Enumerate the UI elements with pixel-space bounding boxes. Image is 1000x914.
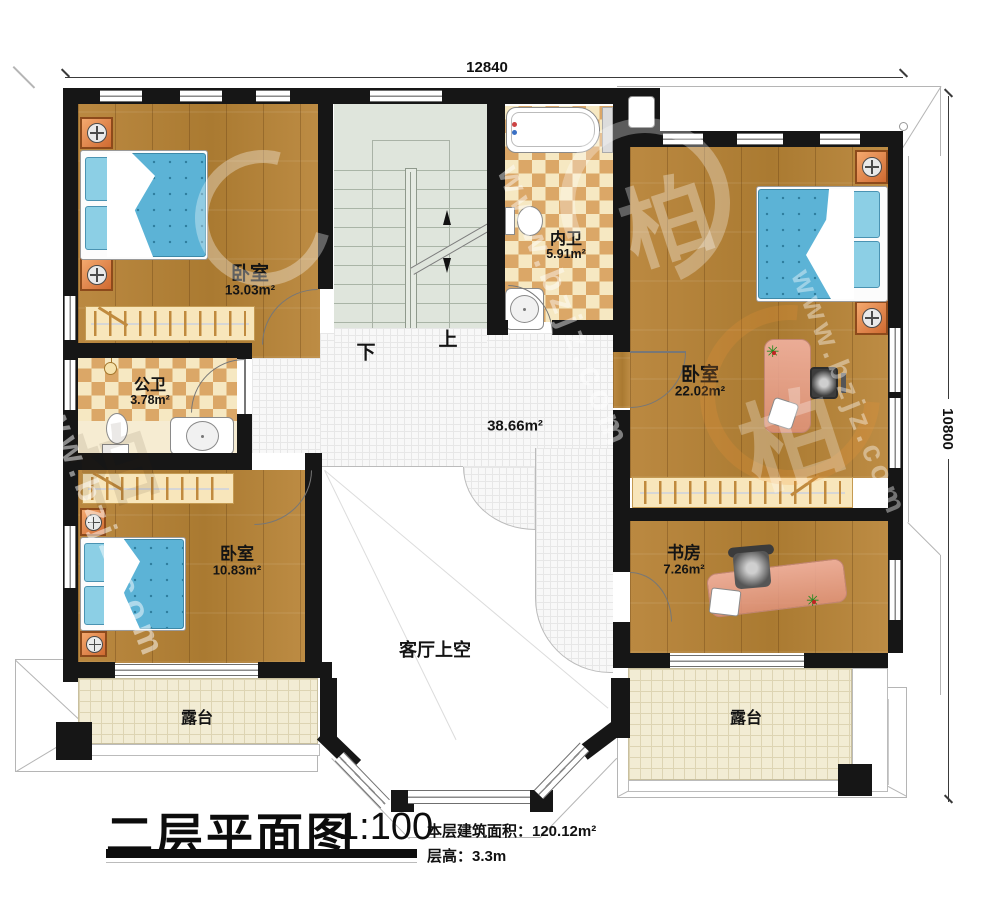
room-area-bath-public: 3.78m² — [130, 393, 170, 407]
room-label-bath-inner: 内卫 — [550, 225, 582, 249]
stair-rail-innerline — [410, 172, 411, 340]
nightstand — [80, 258, 113, 291]
lamp-icon — [87, 123, 107, 143]
wall-stair-right — [487, 104, 505, 320]
terrace-door-window — [115, 664, 258, 676]
void-label: 客厅上空 — [399, 636, 471, 662]
toilet-tank — [505, 207, 515, 235]
window — [64, 526, 76, 588]
floor-hall-strip — [252, 358, 320, 453]
wardrobe-right — [632, 477, 853, 508]
bay-window-right — [534, 743, 589, 800]
eave-right-vline1 — [908, 156, 909, 522]
room-area-bath-inner: 5.91m² — [546, 247, 586, 261]
bathtub-side-panel — [602, 107, 613, 153]
window — [820, 133, 860, 145]
lamp-icon — [862, 157, 882, 177]
window-stairs — [370, 90, 442, 102]
room-label-bath-public: 公卫 — [134, 371, 166, 395]
wall-bedroomR-left-lower — [613, 410, 630, 508]
wall-study-left-lower — [613, 622, 630, 653]
stair-down-label: 下 — [356, 338, 375, 365]
nightstand — [855, 150, 888, 184]
wall-hall-left-lower — [237, 414, 252, 455]
wall-hall-left-upper — [237, 343, 252, 359]
window — [100, 90, 142, 102]
monitor-stand — [841, 373, 846, 393]
title-underline-thin — [106, 862, 417, 863]
pillow — [851, 191, 880, 238]
floor-doorway-right-bedroom — [613, 350, 630, 408]
wall-bedroomMid-bottom-right — [258, 662, 332, 678]
window — [663, 133, 703, 145]
floor-hall-right-pocket — [535, 448, 613, 673]
wall-under-wardrobe — [613, 508, 888, 521]
room-label-bedroom-topleft: 卧室 — [231, 259, 269, 286]
window — [737, 133, 783, 145]
bathtub-faucet-icon — [512, 122, 517, 127]
window — [64, 360, 76, 410]
floor-area-note: 本层建筑面积：120.12m² — [427, 820, 596, 841]
wall-study-bottom-right — [804, 653, 888, 668]
eave-right-diagonal — [907, 522, 940, 555]
eave-right-vline2 — [940, 555, 941, 695]
nightstand — [855, 301, 888, 335]
wall-bedroomR-left-upper — [613, 147, 630, 352]
wall-study-bottom-left — [613, 653, 670, 668]
lamp-icon — [85, 514, 102, 531]
window — [889, 560, 901, 620]
eave-topright-diagonal — [902, 86, 942, 148]
computer-monitor-icon — [810, 367, 838, 399]
wardrobe-topleft — [85, 306, 255, 341]
terrace-left-front-band — [76, 744, 320, 756]
door-leaf — [244, 359, 246, 414]
office-chair-icon — [732, 550, 771, 589]
wall-study-left-upper — [613, 521, 630, 572]
bathtub-faucet-icon — [512, 130, 517, 135]
floorplan-canvas: 卧室 13.03m² 内卫 5.91m² 卧室 22.02m² 公卫 3.78m… — [0, 0, 1000, 914]
void-fold-line2 — [324, 470, 456, 740]
void-boundary-line — [322, 466, 463, 467]
title-underline — [106, 849, 417, 858]
floor-hall-fillet — [463, 467, 535, 530]
lamp-icon — [87, 265, 107, 285]
wall-bath-inner-bottom-right — [552, 320, 613, 335]
window-study — [670, 655, 804, 667]
wall-bedroomMid-bottom-left — [63, 662, 115, 678]
sink-drain — [201, 435, 204, 438]
lamp-icon — [86, 636, 103, 653]
room-area-study: 7.26m² — [663, 562, 704, 577]
room-label-bedroom-right: 卧室 — [681, 360, 719, 387]
terrace-right-front-band — [628, 780, 860, 792]
bay-window-bottom — [408, 790, 534, 804]
eave-topright-vline — [940, 86, 941, 156]
window — [256, 90, 290, 102]
stair-arrow-down-icon — [443, 258, 451, 273]
wall-bath-inner-bottom-left — [487, 320, 508, 335]
terrace-right-label: 露台 — [730, 704, 762, 728]
eave-top-line — [617, 86, 941, 87]
pillow — [85, 157, 110, 201]
pendant-lamp-icon — [104, 362, 117, 375]
nightstand — [80, 117, 113, 149]
room-area-bedroom-right: 22.02m² — [675, 384, 725, 399]
room-label-study: 书房 — [667, 539, 701, 564]
stair-arrow-up-icon — [443, 210, 451, 225]
pillow — [851, 241, 880, 288]
toilet-bowl — [106, 413, 128, 444]
window — [64, 296, 76, 340]
printer-icon — [709, 587, 742, 616]
room-area-bedroom-mid: 10.83m² — [213, 563, 261, 578]
dimension-top-value: 12840 — [455, 59, 519, 76]
nightstand — [80, 508, 106, 536]
bathtub-inner — [511, 112, 595, 147]
floor-height-note: 层高：3.3m — [427, 845, 506, 866]
window — [889, 398, 901, 468]
wall-bedroomTL-bottom — [63, 343, 250, 358]
eave-tick-topleft — [13, 66, 36, 89]
lamp-icon — [862, 308, 882, 328]
dimension-right-value: 10800 — [938, 399, 956, 459]
scale-label: 1:100 — [338, 806, 433, 849]
eave-corner-circle — [899, 122, 908, 131]
pillow — [85, 206, 110, 250]
room-area-bedroom-topleft: 13.03m² — [225, 283, 275, 298]
nightstand — [80, 631, 107, 657]
dimension-line-top — [65, 77, 903, 78]
hall-area-label: 38.66m² — [487, 418, 543, 435]
room-label-bedroom-mid: 卧室 — [220, 540, 254, 565]
terrace-left-label: 露台 — [181, 704, 213, 728]
stair-up-label: 上 — [438, 325, 457, 352]
window — [889, 328, 901, 392]
wall-bedroomTL-right — [318, 104, 333, 289]
wardrobe-mid — [82, 473, 234, 504]
wall-bathpublic-bottom — [63, 453, 252, 470]
wall-top-main — [63, 88, 630, 104]
terrace-left-post — [56, 722, 92, 760]
shower-niche — [628, 96, 655, 128]
toilet-bowl — [517, 206, 543, 236]
terrace-right-post — [838, 764, 872, 796]
window — [180, 90, 222, 102]
stair-center-rail — [405, 168, 417, 344]
